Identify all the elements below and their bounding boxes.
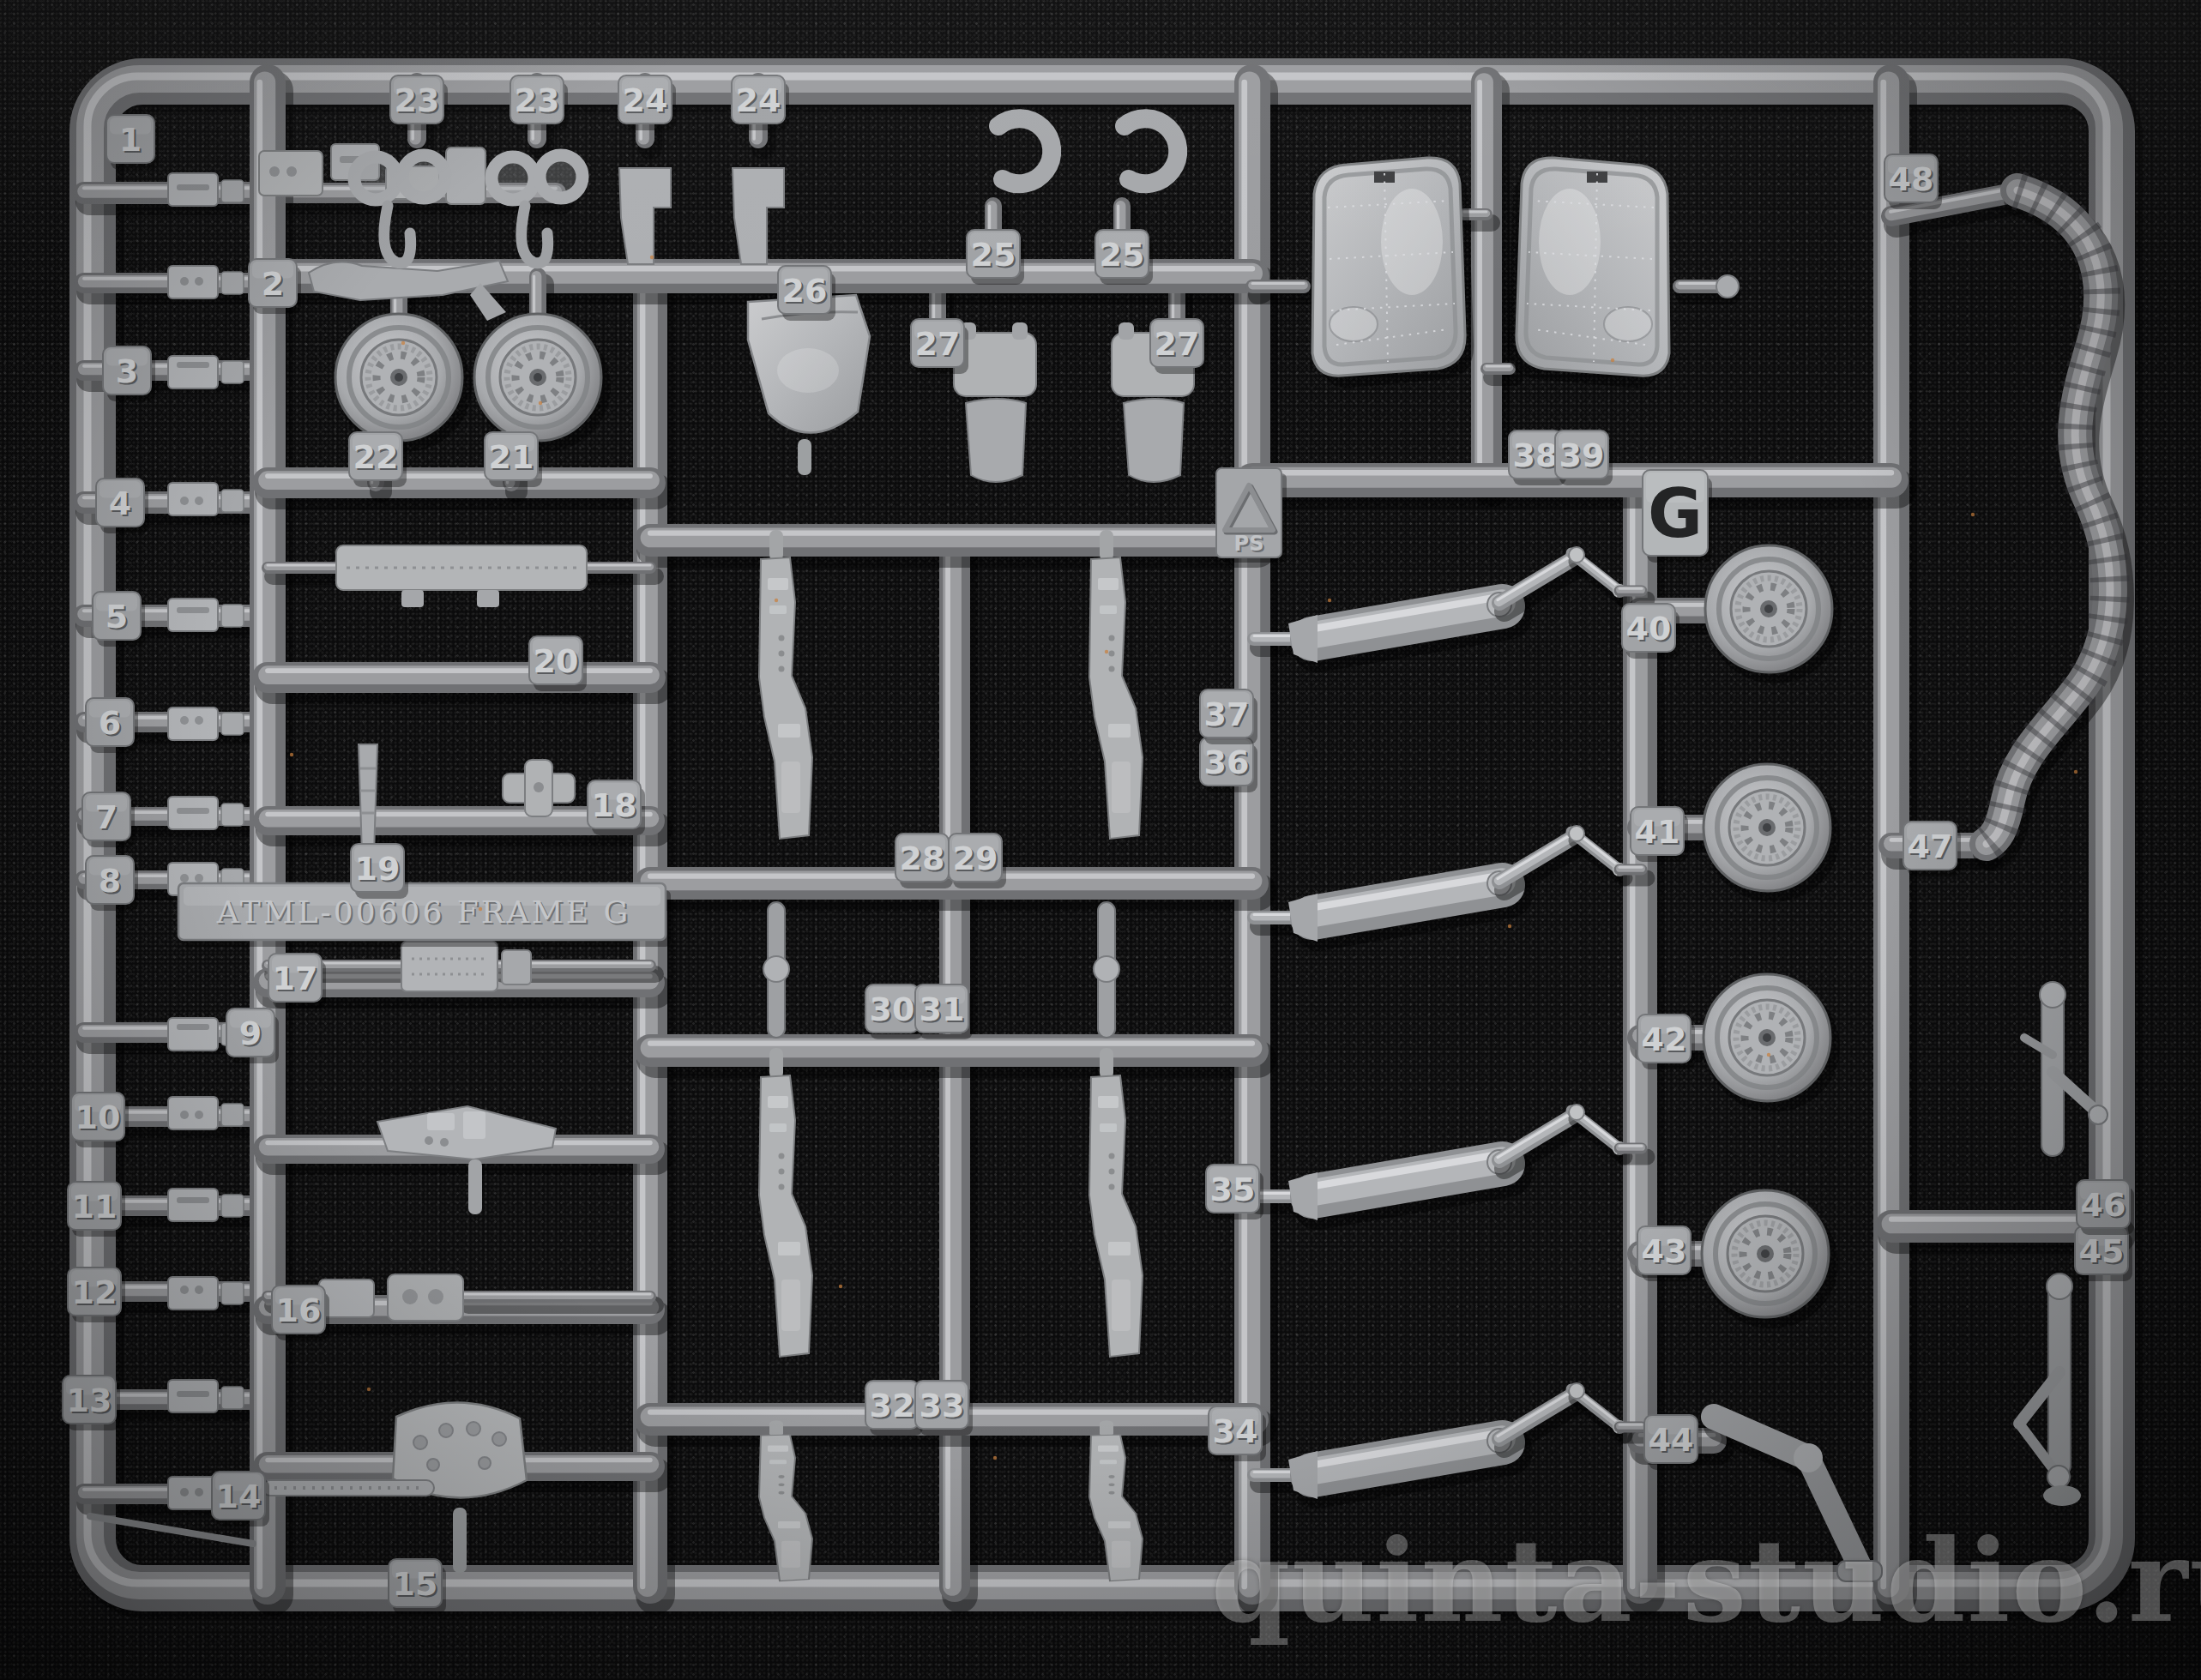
svg-text:5: 5: [106, 598, 128, 635]
part-number-tag: 2424: [618, 75, 676, 130]
orange-fleck: [775, 599, 778, 602]
svg-text:38: 38: [1513, 437, 1559, 474]
part-number-tag: 2828: [895, 834, 953, 888]
part-number-tag: 1717: [268, 954, 326, 1009]
svg-text:39: 39: [1559, 437, 1605, 474]
svg-text:32: 32: [870, 1387, 915, 1424]
svg-text:17: 17: [273, 960, 318, 997]
orange-fleck: [1328, 599, 1331, 602]
svg-text:29: 29: [953, 840, 998, 877]
gear-door-panel-part: [1508, 158, 1669, 388]
part-number-tag: 2727: [1150, 319, 1208, 374]
lever-part: [359, 744, 377, 854]
part-number-tag: 11: [106, 115, 159, 170]
part-number-tag: 3939: [1555, 431, 1613, 485]
orange-fleck: [1767, 1053, 1770, 1057]
small-cockpit-part: [168, 173, 244, 206]
frame-label-plate: ATML-00606 FRAME G ATML-00606 FRAME G: [178, 883, 671, 947]
svg-text:37: 37: [1204, 695, 1250, 733]
part-number-tag: 1414: [212, 1472, 269, 1526]
svg-text:31: 31: [920, 991, 965, 1028]
orange-fleck: [650, 256, 654, 259]
post-part: [763, 902, 789, 1038]
part-number-tag: 1818: [588, 780, 645, 835]
small-cockpit-part: [168, 1380, 244, 1412]
orange-fleck: [290, 753, 293, 756]
svg-text:44: 44: [1649, 1421, 1694, 1459]
landing-gear-strut-part: [1254, 1105, 1647, 1220]
svg-text:22: 22: [353, 438, 399, 476]
part-number-tag: 2929: [949, 834, 1006, 888]
orange-fleck: [1971, 513, 1975, 516]
orange-fleck: [1508, 924, 1511, 928]
sprue-photo: ATML-00606 FRAME G ATML-00606 FRAME G PS…: [0, 0, 2201, 1680]
orange-fleck: [1611, 358, 1614, 362]
part-number-tag: 2222: [349, 432, 407, 487]
svg-text:33: 33: [920, 1387, 965, 1424]
part-number-tag: 2727: [911, 319, 968, 374]
svg-text:6: 6: [99, 704, 121, 742]
part-number-tag: 3737: [1200, 689, 1257, 744]
svg-text:21: 21: [489, 438, 534, 476]
svg-text:3: 3: [116, 352, 138, 390]
instrument-panel-strip-part: [336, 545, 587, 607]
gear-door-panel-part: [1312, 158, 1474, 388]
part-number-tag: 4747: [1903, 822, 1961, 876]
svg-text:19: 19: [355, 850, 401, 888]
svg-text:43: 43: [1642, 1232, 1687, 1270]
part-number-tag: 99: [226, 1009, 279, 1063]
cockpit-console-part: [1089, 530, 1143, 839]
seat-back-part: [748, 295, 870, 475]
svg-text:36: 36: [1204, 744, 1250, 781]
part-number-tag: 1616: [272, 1286, 329, 1340]
part-number-tag: 1111: [68, 1182, 125, 1237]
svg-text:41: 41: [1635, 813, 1680, 851]
part-number-tag: 2323: [390, 75, 448, 130]
svg-text:24: 24: [623, 81, 668, 119]
small-cockpit-part: [168, 356, 244, 388]
orange-fleck: [839, 1285, 842, 1288]
part-number-tag: 3636: [1200, 738, 1257, 792]
small-cockpit-part: [168, 483, 244, 515]
svg-text:23: 23: [515, 81, 560, 119]
orange-fleck: [539, 401, 542, 405]
svg-text:2: 2: [262, 265, 284, 303]
part-number-tag: 44: [96, 479, 148, 533]
small-cockpit-part: [168, 266, 244, 298]
part-number-tag: 4343: [1637, 1226, 1695, 1281]
svg-text:8: 8: [99, 862, 121, 900]
orange-fleck: [367, 1388, 371, 1391]
frame-label-text: ATML-00606 FRAME G: [216, 894, 630, 930]
landing-gear-strut-part: [1254, 547, 1647, 663]
svg-text:45: 45: [2079, 1232, 2125, 1270]
svg-text:35: 35: [1210, 1171, 1256, 1208]
svg-text:48: 48: [1889, 160, 1934, 198]
stepped-bracket-part: [619, 168, 671, 264]
cockpit-console-part: [759, 1048, 812, 1357]
gear-leg-part: [2019, 1274, 2081, 1506]
part-number-tag: 4444: [1644, 1415, 1702, 1470]
part-number-tag: 2424: [732, 75, 789, 130]
part-number-tag: 3131: [915, 985, 973, 1039]
orange-fleck: [1105, 650, 1108, 653]
part-number-tag: 2626: [778, 266, 835, 321]
part-number-tag: 88: [86, 856, 138, 911]
wheel-part: [1705, 545, 1842, 683]
small-cockpit-part: [168, 599, 244, 631]
landing-gear-strut-part: [1254, 826, 1647, 942]
clamp-part: [1125, 118, 1178, 184]
svg-text:24: 24: [736, 81, 781, 119]
svg-text:30: 30: [870, 991, 915, 1028]
svg-text:1: 1: [119, 121, 142, 159]
part-number-tag: 4242: [1637, 1015, 1695, 1069]
cockpit-console-part: [759, 530, 812, 839]
svg-text:28: 28: [900, 840, 945, 877]
part-number-tag: 1515: [389, 1559, 446, 1614]
part-number-tag: 2525: [967, 230, 1024, 285]
svg-text:27: 27: [1155, 325, 1200, 363]
svg-text:26: 26: [782, 272, 828, 310]
orange-fleck: [993, 1456, 997, 1460]
part-number-tag: 4848: [1884, 154, 1942, 209]
svg-text:18: 18: [592, 786, 637, 824]
part-number-tag: 1919: [351, 844, 408, 899]
part-number-tag: 3333: [915, 1381, 973, 1436]
part-number-tag: 1212: [68, 1268, 125, 1322]
small-cockpit-part: [168, 708, 244, 740]
svg-text:13: 13: [67, 1382, 112, 1419]
svg-text:20: 20: [534, 642, 579, 680]
recycle-code-text: PS: [1234, 532, 1264, 556]
svg-text:23: 23: [395, 81, 440, 119]
svg-text:4: 4: [109, 485, 131, 522]
orange-fleck: [2074, 770, 2077, 774]
ruler-strip-part: [262, 1480, 434, 1496]
svg-text:42: 42: [1642, 1021, 1687, 1058]
part-number-tag: 55: [93, 592, 145, 647]
svg-text:27: 27: [915, 325, 961, 363]
small-cockpit-part: [168, 1189, 244, 1221]
orange-fleck: [479, 907, 482, 911]
wheel-part: [474, 314, 611, 452]
landing-gear-strut-part: [1254, 1383, 1647, 1499]
small-cockpit-part: [168, 1277, 244, 1310]
letter-tag: G: [1643, 470, 1712, 563]
part-number-tag: 1010: [71, 1093, 129, 1147]
svg-text:10: 10: [75, 1099, 121, 1136]
sprue-frame-svg: ATML-00606 FRAME G ATML-00606 FRAME G PS…: [0, 0, 2201, 1680]
svg-text:15: 15: [393, 1565, 438, 1603]
part-number-tag: 3535: [1206, 1165, 1263, 1219]
svg-text:46: 46: [2081, 1186, 2126, 1224]
orange-fleck: [401, 341, 405, 345]
wheel-part: [1702, 1190, 1838, 1328]
console-panel-part: [401, 942, 531, 991]
cockpit-console-part: [1089, 1048, 1143, 1357]
svg-text:G: G: [1648, 475, 1703, 552]
part-number-tag: 77: [82, 792, 135, 847]
intake-pipe-part: [1714, 1417, 1882, 1581]
small-cockpit-part: [168, 1097, 244, 1129]
part-number-tag: 66: [86, 698, 138, 753]
svg-text:47: 47: [1908, 828, 1953, 865]
part-number-tag: 3434: [1209, 1406, 1266, 1461]
svg-text:11: 11: [72, 1188, 118, 1225]
sprue-pin: [1716, 275, 1739, 298]
wheel-part: [335, 314, 472, 452]
svg-text:25: 25: [1100, 236, 1145, 274]
part-number-tag: 2525: [1095, 230, 1153, 285]
svg-text:9: 9: [239, 1015, 262, 1052]
stepped-bracket-part: [733, 168, 784, 264]
part-number-tag: 4040: [1622, 604, 1679, 659]
part-number-tag: 2020: [529, 636, 587, 691]
svg-text:16: 16: [276, 1292, 322, 1329]
svg-text:7: 7: [95, 798, 118, 836]
svg-text:25: 25: [971, 236, 1016, 274]
part-number-tag: 33: [103, 346, 155, 401]
svg-text:40: 40: [1626, 610, 1672, 647]
part-number-tag: 2323: [510, 75, 568, 130]
svg-text:12: 12: [72, 1274, 118, 1311]
part-number-tag: 3232: [865, 1381, 923, 1436]
small-cockpit-part: [168, 797, 244, 829]
wheel-part: [1704, 974, 1840, 1112]
part-number-tag: 1313: [63, 1376, 120, 1430]
part-number-tag: 2121: [485, 432, 542, 487]
wheel-part: [1704, 764, 1840, 902]
post-part: [1094, 902, 1119, 1038]
part-number-tag: 4646: [2077, 1180, 2134, 1235]
svg-text:34: 34: [1213, 1412, 1258, 1450]
part-number-tag: 4141: [1631, 807, 1688, 862]
part-number-tag: 22: [249, 259, 301, 314]
part-number-tag: 3030: [865, 985, 923, 1039]
svg-text:14: 14: [216, 1478, 262, 1515]
recycle-symbol-plate: PS PS: [1216, 468, 1287, 563]
clamp-part: [998, 118, 1052, 184]
small-box-parts: [319, 1274, 463, 1321]
